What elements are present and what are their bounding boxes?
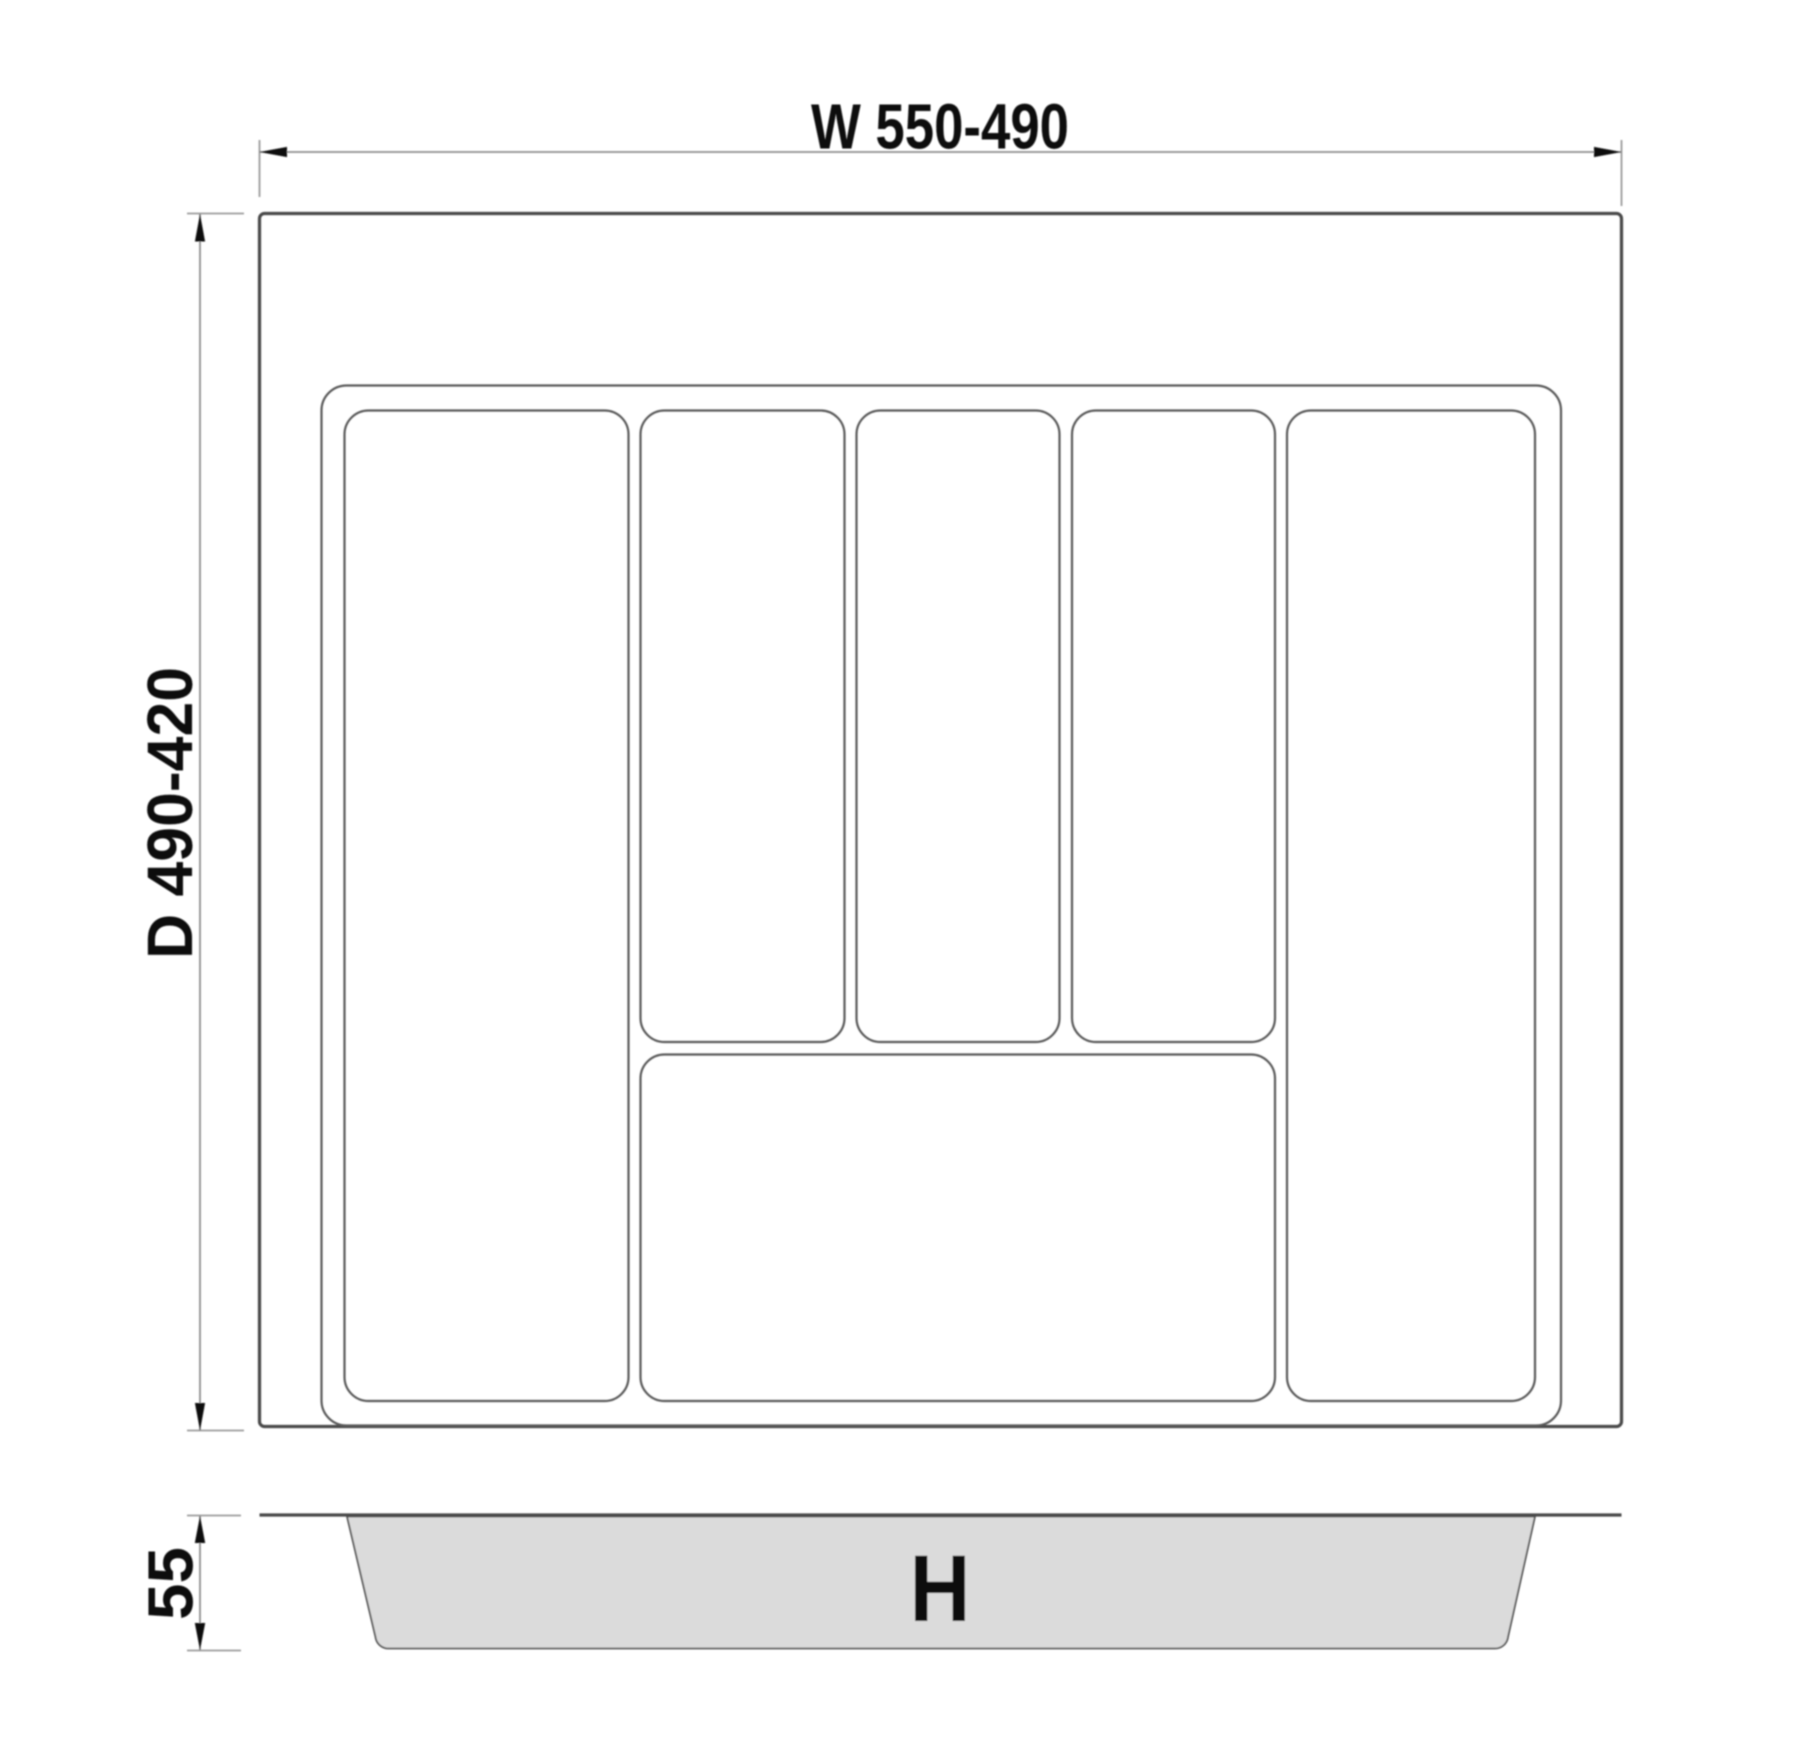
svg-text:55: 55: [135, 1547, 207, 1620]
svg-text:W 550-490: W 550-490: [811, 91, 1069, 163]
svg-text:H: H: [910, 1536, 971, 1642]
svg-text:D 490-420: D 490-420: [134, 667, 206, 959]
